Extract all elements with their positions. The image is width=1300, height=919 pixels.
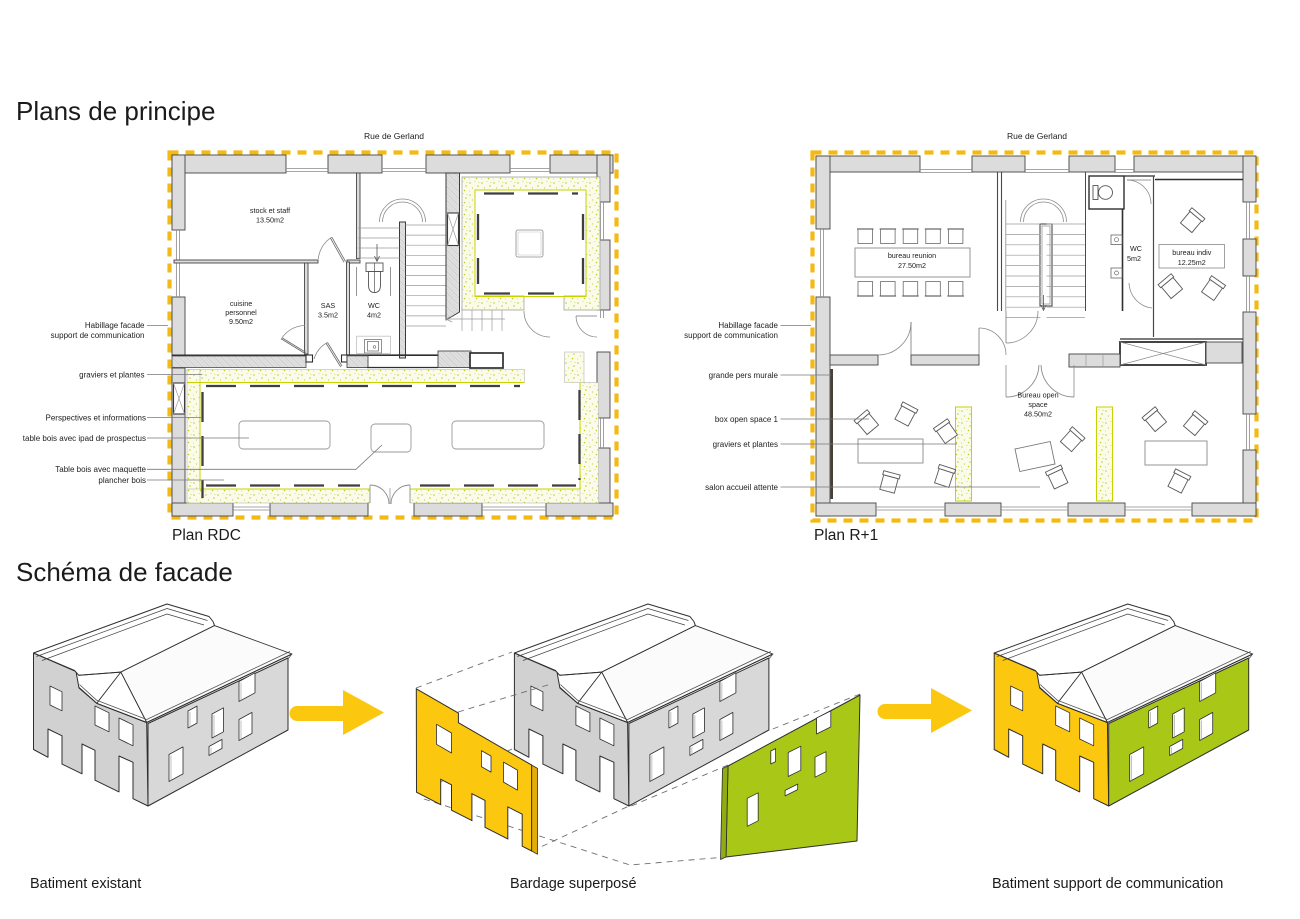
svg-text:WC: WC: [368, 301, 380, 310]
svg-text:Rue de Gerland: Rue de Gerland: [364, 131, 424, 141]
svg-text:support de communication: support de communication: [684, 331, 778, 340]
svg-text:support de communication: support de communication: [51, 331, 145, 340]
svg-text:salon accueil attente: salon accueil attente: [705, 483, 778, 492]
svg-text:bureau reunion: bureau reunion: [888, 251, 936, 260]
svg-text:13.50m2: 13.50m2: [256, 216, 284, 225]
svg-text:Plan RDC: Plan RDC: [172, 527, 241, 544]
svg-text:Perspectives et informations: Perspectives et informations: [46, 414, 147, 423]
svg-text:table bois avec ipad de prospe: table bois avec ipad de prospectus: [23, 434, 146, 443]
svg-text:Plan R+1: Plan R+1: [814, 527, 878, 544]
svg-text:plancher bois: plancher bois: [98, 476, 146, 485]
svg-text:3.5m2: 3.5m2: [318, 311, 338, 320]
svg-text:Batiment existant: Batiment existant: [30, 876, 141, 892]
svg-text:Bureau open: Bureau open: [1017, 391, 1058, 400]
svg-text:cuisine: cuisine: [230, 299, 252, 308]
svg-text:48.50m2: 48.50m2: [1024, 410, 1052, 419]
svg-text:Habillage facade: Habillage facade: [85, 321, 145, 330]
svg-text:personnel: personnel: [225, 308, 257, 317]
svg-text:9.50m2: 9.50m2: [229, 317, 253, 326]
svg-text:Table bois avec maquette: Table bois avec maquette: [55, 465, 146, 474]
svg-text:Batiment support de communicat: Batiment support de communication: [992, 876, 1223, 892]
svg-text:graviers et plantes: graviers et plantes: [79, 371, 144, 380]
svg-text:WC: WC: [1130, 244, 1142, 253]
svg-text:Habillage facade: Habillage facade: [718, 321, 778, 330]
svg-text:Rue de Gerland: Rue de Gerland: [1007, 131, 1067, 141]
svg-text:bureau indiv: bureau indiv: [1172, 248, 1212, 257]
svg-text:27.50m2: 27.50m2: [898, 261, 926, 270]
svg-text:stock et staff: stock et staff: [250, 206, 290, 215]
svg-text:5m2: 5m2: [1127, 254, 1141, 263]
svg-text:Plans de principe: Plans de principe: [16, 96, 215, 126]
svg-text:12.25m2: 12.25m2: [1178, 258, 1206, 267]
svg-text:Schéma de facade: Schéma de facade: [16, 557, 233, 587]
svg-text:SAS: SAS: [321, 301, 336, 310]
svg-text:box open space 1: box open space 1: [715, 415, 779, 424]
svg-text:grande pers murale: grande pers murale: [709, 371, 779, 380]
svg-text:graviers et plantes: graviers et plantes: [713, 440, 778, 449]
svg-text:Bardage superposé: Bardage superposé: [510, 876, 637, 892]
svg-text:4m2: 4m2: [367, 311, 381, 320]
svg-text:space: space: [1028, 400, 1047, 409]
